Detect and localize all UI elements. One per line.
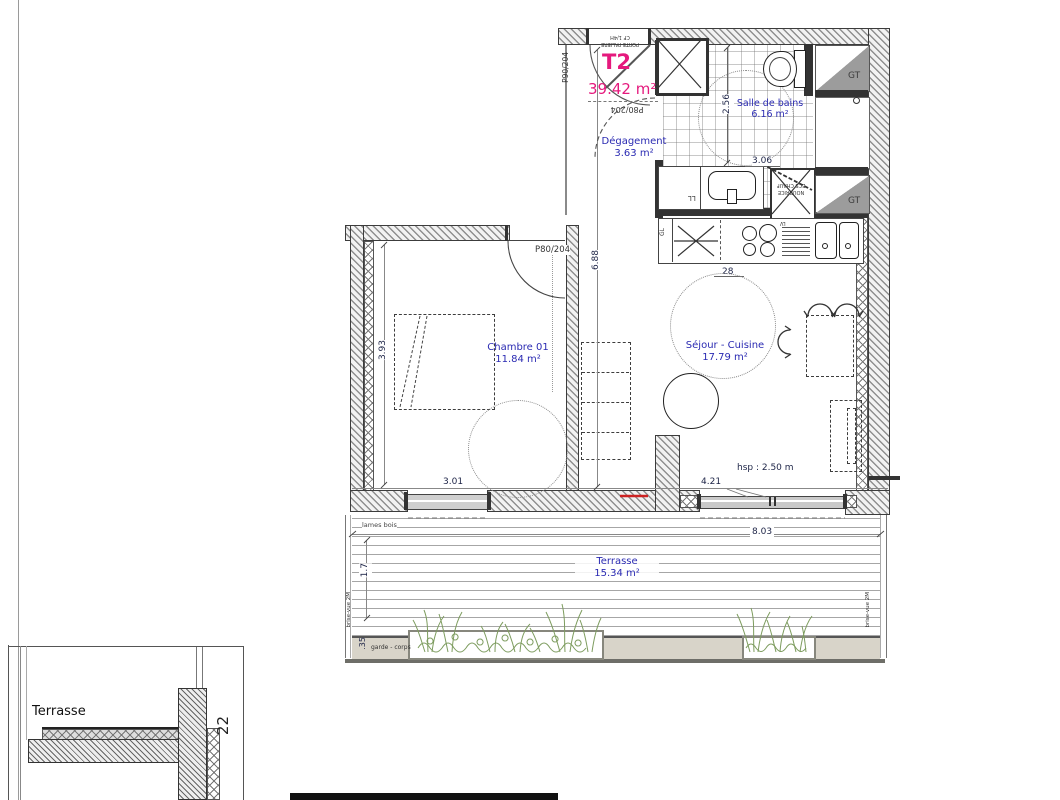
gt-label-bottom: GT bbox=[848, 196, 860, 206]
wall-bottom-left bbox=[350, 490, 408, 512]
exterior-wall-right bbox=[868, 28, 890, 515]
wall-step-notch bbox=[868, 476, 900, 480]
shelf-2 bbox=[582, 402, 629, 403]
bed bbox=[394, 314, 495, 410]
dimline-301-421 bbox=[352, 488, 888, 489]
bottom-crop-bar bbox=[290, 793, 558, 800]
detail-wall-column bbox=[178, 688, 207, 800]
bay-jamb-l bbox=[697, 494, 701, 509]
bathroom-door-arc bbox=[595, 98, 655, 158]
bedroom-window-jamb-l bbox=[404, 492, 408, 510]
bay-jamb-r bbox=[843, 494, 847, 509]
bay-window-rail bbox=[701, 500, 844, 502]
terrace-decking bbox=[352, 518, 880, 636]
nourrice-line1: NOURRICE bbox=[771, 189, 811, 196]
bedroom-door-frame bbox=[508, 240, 565, 241]
counter-divider bbox=[720, 220, 721, 260]
washbasin-tap bbox=[727, 189, 737, 204]
bedroom-door-jamb bbox=[505, 225, 508, 241]
shelving-unit bbox=[581, 342, 631, 460]
detail-lattice-column bbox=[207, 728, 220, 800]
planter-large bbox=[408, 630, 604, 660]
dim-421: 4.21 bbox=[699, 477, 723, 487]
detail-border-top bbox=[8, 646, 243, 647]
unit-area: 39.42 m² bbox=[588, 80, 656, 98]
texts: P90/204 PORTE PALIERE CF 1/4H T2 39.42 m… bbox=[0, 0, 1060, 800]
toilet-bowl-inner bbox=[769, 57, 791, 81]
detail-border-right bbox=[243, 646, 244, 800]
sofa-back bbox=[847, 408, 856, 464]
wall-pier bbox=[655, 435, 680, 512]
closet-band bbox=[815, 167, 868, 175]
plan-linework bbox=[0, 0, 1060, 800]
gt-closet-bottom bbox=[815, 175, 870, 214]
water-manifold-label: NOURRICE ECS CHAUF bbox=[771, 182, 811, 195]
dimline-393 bbox=[384, 245, 385, 485]
washing-machine bbox=[658, 166, 702, 210]
cooktop-burner-1 bbox=[742, 226, 757, 241]
sofa bbox=[830, 400, 862, 472]
terrace-edge-right bbox=[880, 515, 887, 658]
bedroom-door-label: P80/204 bbox=[535, 245, 570, 255]
dim-hsp: hsp : 2.50 m bbox=[735, 463, 796, 473]
dishwasher-label: LV bbox=[780, 220, 786, 226]
dim-301: 3.01 bbox=[441, 477, 465, 487]
degagement-west-partition bbox=[565, 45, 567, 215]
turning-circle-bedroom bbox=[468, 400, 568, 498]
kitchen-sink-basin-2 bbox=[839, 222, 859, 259]
door-leaf-open bbox=[552, 252, 553, 392]
chair-left bbox=[778, 326, 791, 358]
peephole-dot bbox=[853, 97, 860, 104]
turning-circle-sejour bbox=[670, 273, 776, 379]
bay-center-tick-2 bbox=[774, 497, 776, 506]
gt-closet-top bbox=[815, 45, 870, 92]
kitchen-sink-basin-1 bbox=[815, 222, 837, 259]
coffee-table bbox=[663, 373, 719, 429]
unit-type: T2 bbox=[602, 50, 631, 74]
dining-table bbox=[806, 315, 854, 377]
nourrice-line2: ECS CHAUF bbox=[771, 182, 811, 189]
cooktop-burner-2 bbox=[759, 224, 777, 242]
detail-window-line-1 bbox=[196, 647, 197, 688]
detail-slab bbox=[28, 739, 179, 763]
bedroom-wall-top bbox=[345, 225, 510, 241]
entry-door-leaf bbox=[606, 45, 650, 88]
gt-top-band bbox=[815, 90, 868, 97]
dimline-306 bbox=[745, 166, 780, 167]
bedroom-window-jamb-r bbox=[487, 492, 491, 510]
detail-line-1 bbox=[20, 646, 21, 800]
unit-area-underline bbox=[588, 101, 658, 102]
detail-label: Terrasse bbox=[32, 704, 86, 719]
drainboard bbox=[782, 227, 810, 256]
utility-closet bbox=[815, 97, 870, 169]
gt-label-top: GT bbox=[848, 71, 860, 81]
bay-center-tick-1 bbox=[769, 497, 771, 506]
detail-dim-22: 22 bbox=[216, 716, 231, 735]
entry-door-opening bbox=[589, 29, 648, 44]
entry-door-arc bbox=[590, 45, 650, 105]
floor-plan-sheet: LL NOURRICE ECS CHAUF GT GT GL LV bbox=[0, 0, 1060, 800]
exterior-wall-left bbox=[350, 225, 364, 512]
dimline-803 bbox=[352, 534, 880, 535]
detail-border-left bbox=[8, 645, 9, 800]
terrace-edge-left bbox=[345, 515, 351, 658]
detail-window-line-2 bbox=[202, 647, 203, 688]
bedroom-window-rail bbox=[408, 500, 487, 502]
shelf-3 bbox=[582, 432, 629, 433]
entry-door-jamb-right bbox=[648, 28, 651, 45]
entry-door-jamb-left bbox=[586, 28, 589, 45]
dimline-17 bbox=[366, 540, 367, 618]
insulation-left bbox=[364, 241, 374, 497]
bedroom-window bbox=[408, 494, 487, 510]
dimline-688 bbox=[597, 50, 598, 487]
shelf-1 bbox=[582, 372, 629, 373]
duct-box bbox=[656, 38, 709, 96]
planter-small bbox=[742, 636, 816, 660]
sink-drain-1 bbox=[822, 243, 828, 249]
sink-drain-2 bbox=[845, 243, 851, 249]
kitchen-gl-label: GL bbox=[660, 228, 666, 236]
detail-line-2 bbox=[26, 646, 27, 740]
cooktop-burner-3 bbox=[743, 243, 756, 256]
hall-door-label: P80/204 bbox=[598, 105, 656, 114]
kitchen-gl-box bbox=[658, 218, 673, 262]
page-border-line bbox=[18, 0, 19, 800]
bedroom-sejour-wall bbox=[566, 225, 579, 500]
dimline-256 bbox=[727, 48, 728, 163]
washing-machine-label: LL bbox=[688, 194, 696, 202]
cooktop-burner-4 bbox=[760, 242, 775, 257]
